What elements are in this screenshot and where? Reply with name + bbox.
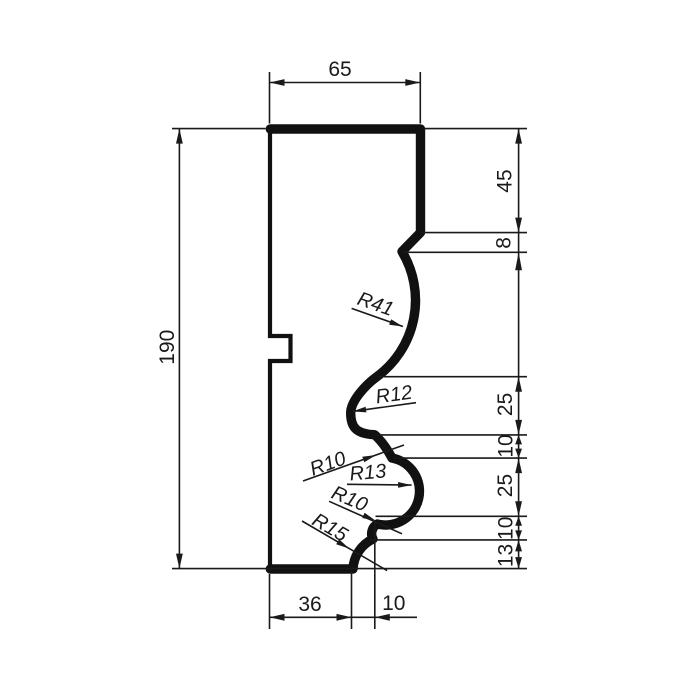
svg-text:10: 10 (494, 517, 517, 540)
svg-text:13: 13 (494, 544, 517, 567)
svg-text:R41: R41 (354, 288, 396, 321)
svg-text:45: 45 (493, 169, 516, 192)
svg-text:R13: R13 (349, 460, 387, 485)
svg-text:190: 190 (156, 330, 179, 365)
svg-text:10: 10 (382, 592, 405, 615)
svg-text:R10: R10 (307, 448, 349, 481)
svg-text:25: 25 (494, 393, 517, 416)
svg-text:R10: R10 (328, 482, 370, 517)
svg-text:65: 65 (328, 58, 351, 81)
svg-text:10: 10 (494, 434, 517, 457)
svg-text:36: 36 (298, 593, 321, 616)
svg-text:25: 25 (494, 474, 517, 497)
svg-text:R15: R15 (308, 509, 352, 547)
svg-text:8: 8 (493, 237, 516, 249)
